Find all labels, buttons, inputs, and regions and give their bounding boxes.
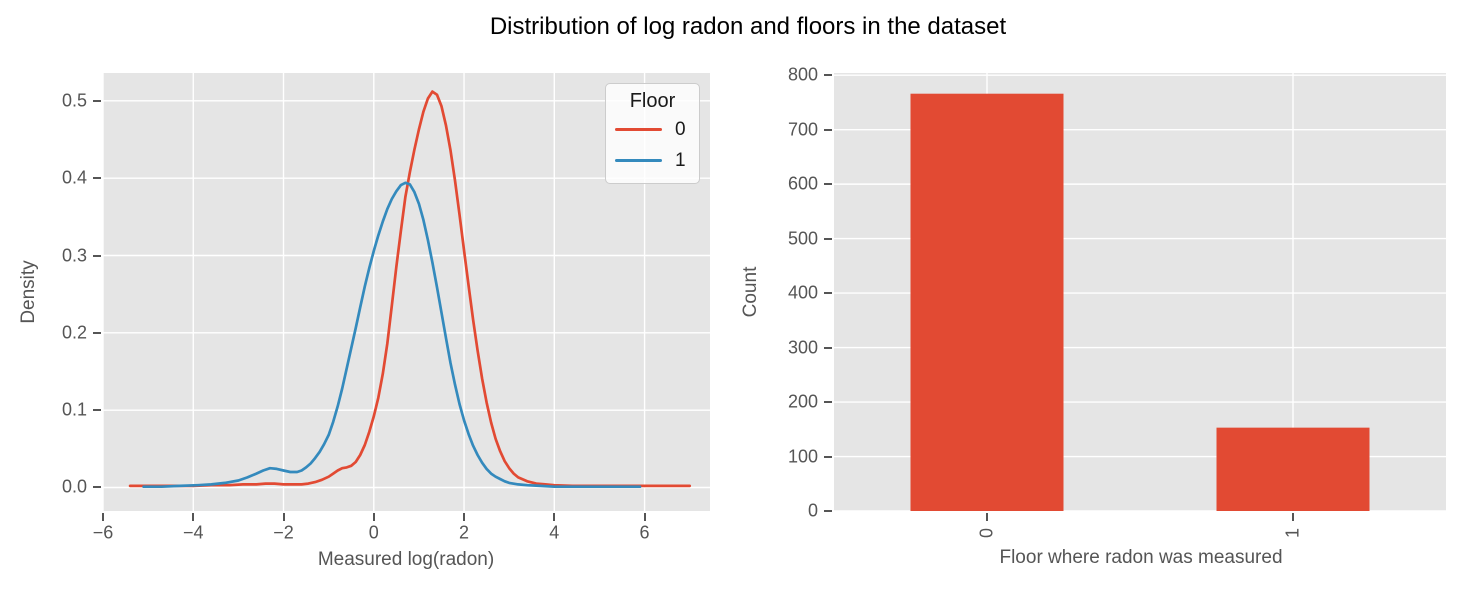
y-tick-label: 700 [788,119,818,140]
bar-canvas [834,73,1446,511]
x-tick-label: −2 [273,523,294,544]
y-tick-mark [824,401,832,403]
figure: Distribution of log radon and floors in … [0,0,1459,592]
y-tick-label: 600 [788,174,818,195]
kde-xaxis-label: Measured log(radon) [318,549,494,571]
y-tick-mark [824,238,832,240]
figure-title: Distribution of log radon and floors in … [490,13,1006,41]
legend-line-floor-0-swatch [615,128,662,131]
y-tick-label: 0.5 [62,90,87,111]
y-tick-mark [93,255,101,257]
y-tick-label: 200 [788,392,818,413]
x-tick-mark [463,513,465,521]
y-tick-mark [824,347,832,349]
legend-entry-floor-1: 1 [606,145,699,176]
y-tick-mark [93,100,101,102]
x-tick-mark [283,513,285,521]
y-tick-label: 0.3 [62,245,87,266]
x-tick-label: 1 [1283,528,1304,538]
bar-floor-0 [911,94,1064,511]
y-tick-mark [824,183,832,185]
x-tick-mark [553,513,555,521]
legend: Floor 0 1 [605,83,700,184]
x-tick-label: 2 [459,523,469,544]
x-tick-mark [102,513,104,521]
y-tick-label: 0.2 [62,322,87,343]
y-tick-mark [93,486,101,488]
bar-yaxis-label: Count [740,267,762,318]
x-tick-mark [644,513,646,521]
x-tick-label: −6 [93,523,114,544]
x-tick-mark [373,513,375,521]
bar-xaxis-label: Floor where radon was measured [999,547,1282,569]
y-tick-mark [824,510,832,512]
y-tick-label: 500 [788,228,818,249]
y-tick-label: 0.1 [62,400,87,421]
kde-yaxis-label: Density [18,260,40,323]
x-tick-label: 0 [369,523,379,544]
x-tick-mark [1292,513,1294,521]
kde-curve-floor-1 [144,183,640,487]
x-tick-label: 4 [549,523,559,544]
y-tick-label: 0 [808,501,818,522]
x-tick-mark [192,513,194,521]
y-tick-mark [824,292,832,294]
legend-line-floor-1-swatch [615,159,662,162]
bar-plot-area [834,73,1446,511]
y-tick-mark [824,456,832,458]
y-tick-label: 100 [788,446,818,467]
y-tick-label: 300 [788,337,818,358]
legend-entry-floor-0: 0 [606,114,699,145]
legend-label-floor-0: 0 [675,119,686,141]
bar-floor-1 [1217,428,1370,511]
y-tick-label: 800 [788,65,818,86]
y-tick-mark [824,129,832,131]
x-tick-label: −4 [183,523,204,544]
y-tick-label: 0.0 [62,477,87,498]
legend-label-floor-1: 1 [675,150,686,172]
legend-title: Floor [606,89,699,114]
y-tick-mark [93,332,101,334]
x-tick-label: 0 [977,528,998,538]
x-tick-label: 6 [640,523,650,544]
y-tick-label: 0.4 [62,168,87,189]
y-tick-mark [93,409,101,411]
x-tick-mark [986,513,988,521]
y-tick-mark [824,74,832,76]
y-tick-label: 400 [788,283,818,304]
y-tick-mark [93,177,101,179]
